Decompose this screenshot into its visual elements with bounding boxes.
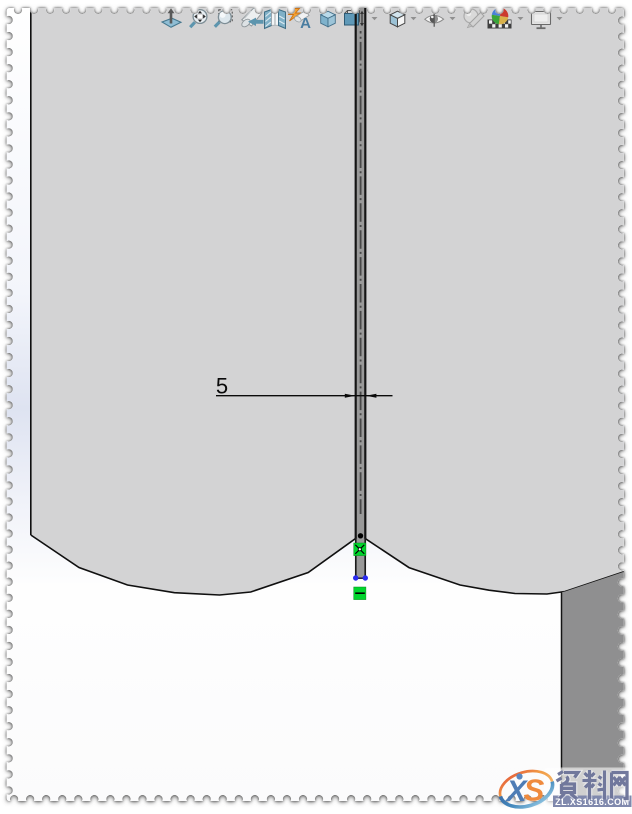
svg-text:S: S (524, 773, 545, 808)
svg-text:5: 5 (216, 374, 228, 399)
svg-text:A: A (300, 15, 311, 32)
